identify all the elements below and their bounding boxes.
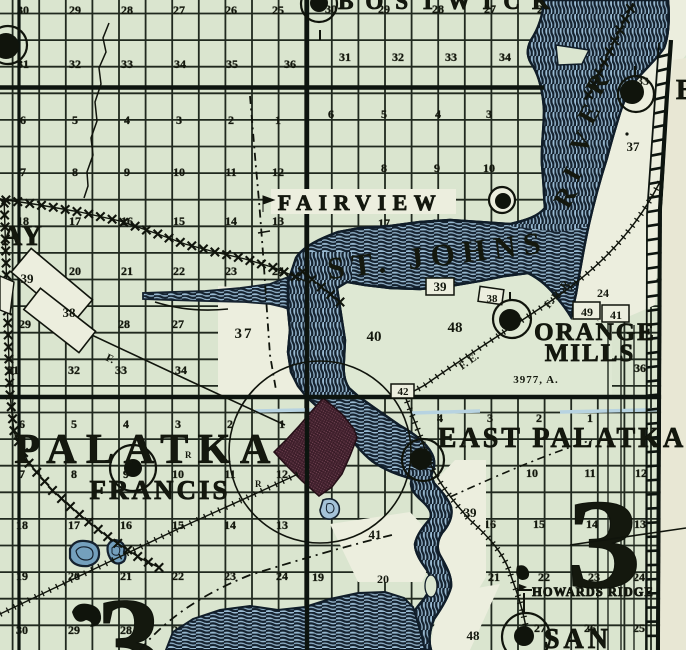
svg-text:37: 37 [235, 326, 254, 342]
svg-text:32: 32 [69, 57, 81, 71]
svg-text:14: 14 [225, 214, 237, 228]
svg-text:21: 21 [488, 570, 500, 584]
svg-text:34: 34 [174, 57, 186, 71]
svg-text:40: 40 [367, 329, 382, 345]
svg-text:4: 4 [435, 107, 441, 121]
svg-text:3: 3 [486, 107, 492, 121]
svg-text:3: 3 [176, 113, 182, 127]
svg-text:10: 10 [173, 165, 185, 179]
svg-text:12: 12 [272, 165, 284, 179]
svg-text:39: 39 [434, 279, 448, 294]
svg-text:38: 38 [487, 293, 499, 305]
svg-text:13: 13 [272, 214, 284, 228]
svg-text:27: 27 [172, 317, 184, 331]
svg-text:39: 39 [464, 505, 478, 520]
svg-text:28: 28 [121, 3, 133, 17]
svg-text:3977, A.: 3977, A. [513, 374, 559, 386]
svg-text:R: R [255, 479, 262, 489]
svg-text:5: 5 [72, 113, 78, 127]
svg-text:17: 17 [69, 214, 81, 228]
svg-text:3: 3 [96, 570, 162, 650]
svg-text:PALATKA: PALATKA [14, 427, 280, 473]
svg-text:8: 8 [381, 161, 387, 175]
svg-text:24: 24 [276, 569, 288, 583]
svg-text:33: 33 [445, 50, 457, 64]
svg-text:10: 10 [526, 466, 538, 480]
svg-text:22: 22 [538, 570, 550, 584]
svg-text:29: 29 [19, 317, 31, 331]
svg-text:10: 10 [483, 161, 495, 175]
svg-text:HOWARDS RIDGE: HOWARDS RIDGE [532, 585, 654, 599]
svg-text:22: 22 [172, 569, 184, 583]
svg-text:20: 20 [69, 264, 81, 278]
svg-text:AY: AY [2, 221, 44, 252]
svg-text:9: 9 [434, 161, 440, 175]
svg-text:8: 8 [72, 165, 78, 179]
svg-text:MILLS: MILLS [545, 340, 636, 367]
svg-text:42: 42 [398, 386, 410, 398]
svg-text:16: 16 [120, 518, 132, 532]
svg-text:33: 33 [121, 57, 133, 71]
svg-text:33: 33 [115, 363, 127, 377]
svg-text:35: 35 [226, 57, 238, 71]
svg-text:31: 31 [339, 50, 351, 64]
svg-text:6: 6 [328, 107, 334, 121]
svg-text:FRANCIS: FRANCIS [89, 475, 230, 505]
svg-text:BOSTWICK: BOSTWICK [338, 0, 562, 14]
svg-text:6: 6 [20, 113, 26, 127]
svg-text:23: 23 [225, 264, 237, 278]
svg-text:14: 14 [224, 518, 236, 532]
svg-text:22: 22 [173, 264, 185, 278]
svg-text:27: 27 [173, 3, 185, 17]
svg-text:11: 11 [225, 165, 236, 179]
svg-text:39: 39 [21, 271, 35, 286]
svg-text:28: 28 [118, 317, 130, 331]
svg-text:9: 9 [124, 165, 130, 179]
svg-text:SAN: SAN [544, 624, 612, 650]
svg-text:B: B [676, 75, 686, 106]
svg-text:21: 21 [121, 264, 133, 278]
svg-text:25: 25 [272, 3, 284, 17]
svg-text:32: 32 [68, 363, 80, 377]
svg-text:15: 15 [173, 214, 185, 228]
svg-text:37: 37 [627, 139, 641, 154]
svg-text:26: 26 [225, 3, 237, 17]
svg-text:33: 33 [637, 74, 649, 88]
svg-text:4: 4 [124, 113, 130, 127]
svg-text:13: 13 [276, 518, 288, 532]
svg-text:36: 36 [634, 361, 646, 375]
svg-text:20: 20 [377, 572, 389, 586]
svg-text:24: 24 [597, 286, 609, 300]
svg-text:15: 15 [533, 517, 545, 531]
svg-text:29: 29 [68, 623, 80, 637]
svg-text:32: 32 [392, 50, 404, 64]
svg-text:17: 17 [68, 518, 80, 532]
svg-text:2: 2 [228, 113, 234, 127]
svg-text:48: 48 [448, 320, 463, 336]
svg-text:23: 23 [224, 569, 236, 583]
svg-text:R: R [185, 450, 192, 460]
svg-text:5: 5 [381, 107, 387, 121]
svg-text:25: 25 [633, 621, 645, 635]
svg-text:38: 38 [63, 305, 77, 320]
svg-text:19: 19 [312, 570, 324, 584]
svg-text:1: 1 [275, 113, 281, 127]
svg-text:41: 41 [369, 527, 382, 542]
svg-text:49: 49 [581, 305, 593, 319]
svg-text:EAST PALATKA: EAST PALATKA [438, 423, 686, 454]
svg-text:7: 7 [20, 165, 26, 179]
svg-text:29: 29 [69, 3, 81, 17]
svg-text:FAIRVIEW: FAIRVIEW [278, 190, 443, 215]
svg-text:41: 41 [610, 308, 622, 322]
svg-text:48: 48 [467, 628, 481, 643]
svg-text:36: 36 [284, 57, 296, 71]
svg-text:34: 34 [499, 50, 511, 64]
